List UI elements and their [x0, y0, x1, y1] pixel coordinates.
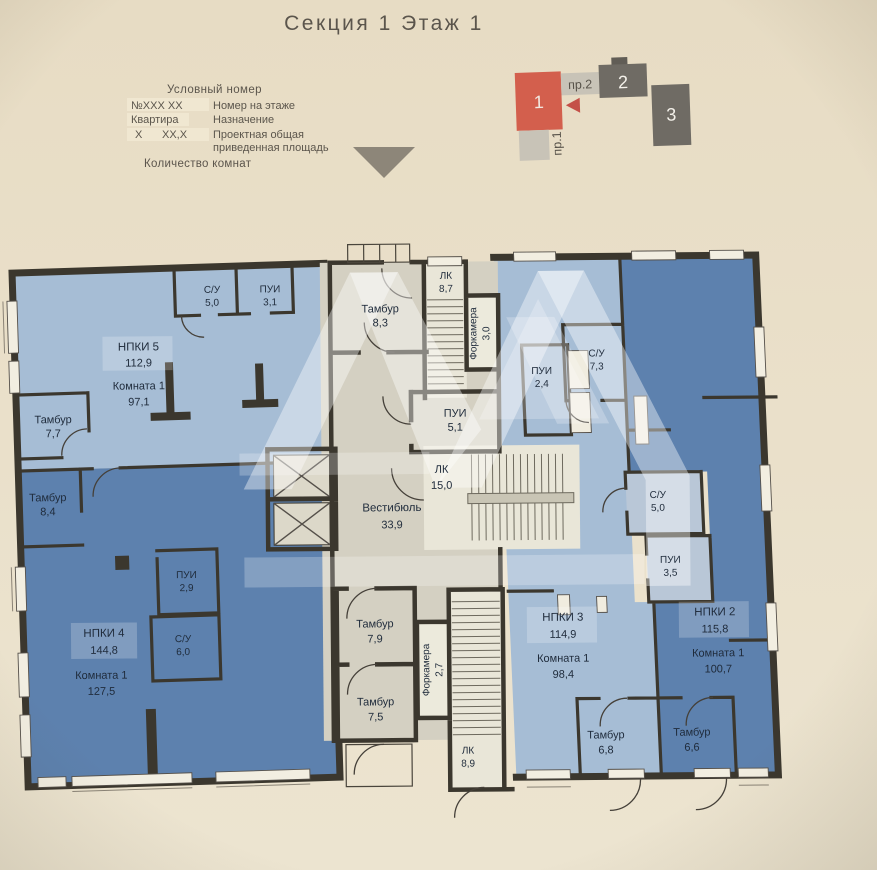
photo-vignette	[0, 0, 877, 870]
floor-plan-photo: Секция 1 Этаж 1 Условный номер №XXX XX Н…	[0, 0, 877, 870]
plan-canvas: Секция 1 Этаж 1 Условный номер №XXX XX Н…	[0, 0, 877, 870]
